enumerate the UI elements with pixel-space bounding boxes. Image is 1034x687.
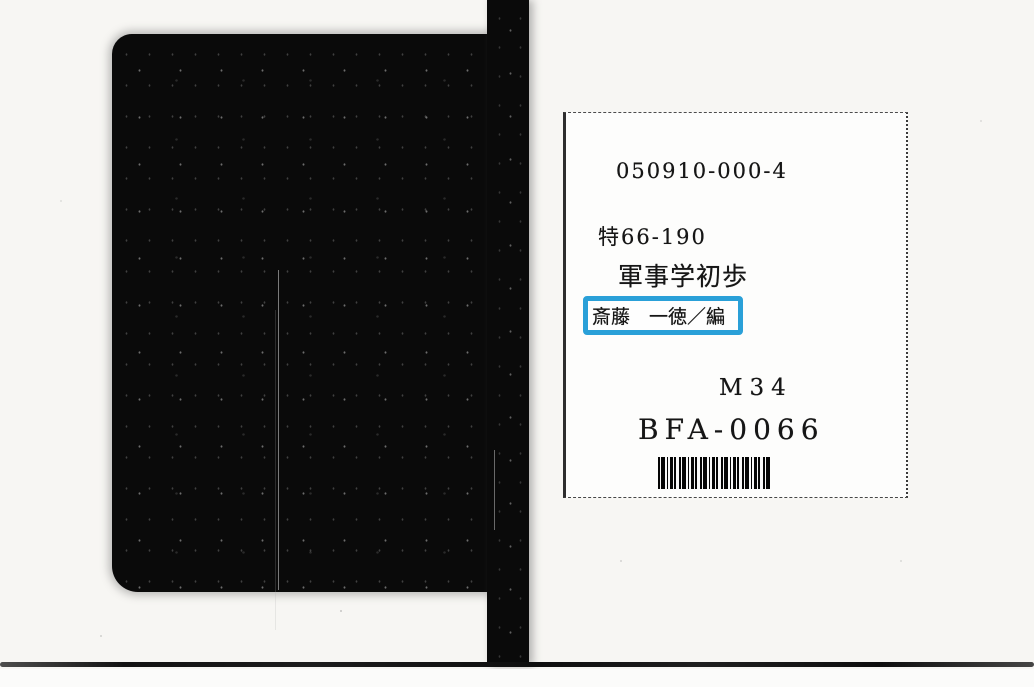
scan-scratch-line (494, 450, 495, 530)
barcode-icon (658, 457, 770, 489)
scan-artifact-line (278, 270, 279, 590)
library-label-card: 050910-000-4 特66-190 軍事学初歩 斎藤 一徳／編 M34 B… (563, 112, 908, 498)
book-title: 軍事学初歩 (618, 257, 748, 293)
scan-margin-bottom (0, 669, 1034, 687)
shelf-code: M34 (719, 375, 793, 401)
classification-number: 特66-190 (598, 221, 707, 251)
author-highlight-box: 斎藤 一徳／編 (583, 296, 743, 335)
scan-noise-specks (20, 20, 22, 22)
scanned-page: 050910-000-4 特66-190 軍事学初歩 斎藤 一徳／編 M34 B… (0, 0, 1034, 687)
accession-number: BFA-0066 (638, 413, 825, 446)
page-edge-line (0, 662, 1034, 667)
author-name: 斎藤 一徳／編 (588, 302, 725, 329)
book-spine-bar (487, 0, 529, 666)
call-number: 050910-000-4 (616, 159, 788, 183)
book-cover-scan (112, 34, 512, 592)
